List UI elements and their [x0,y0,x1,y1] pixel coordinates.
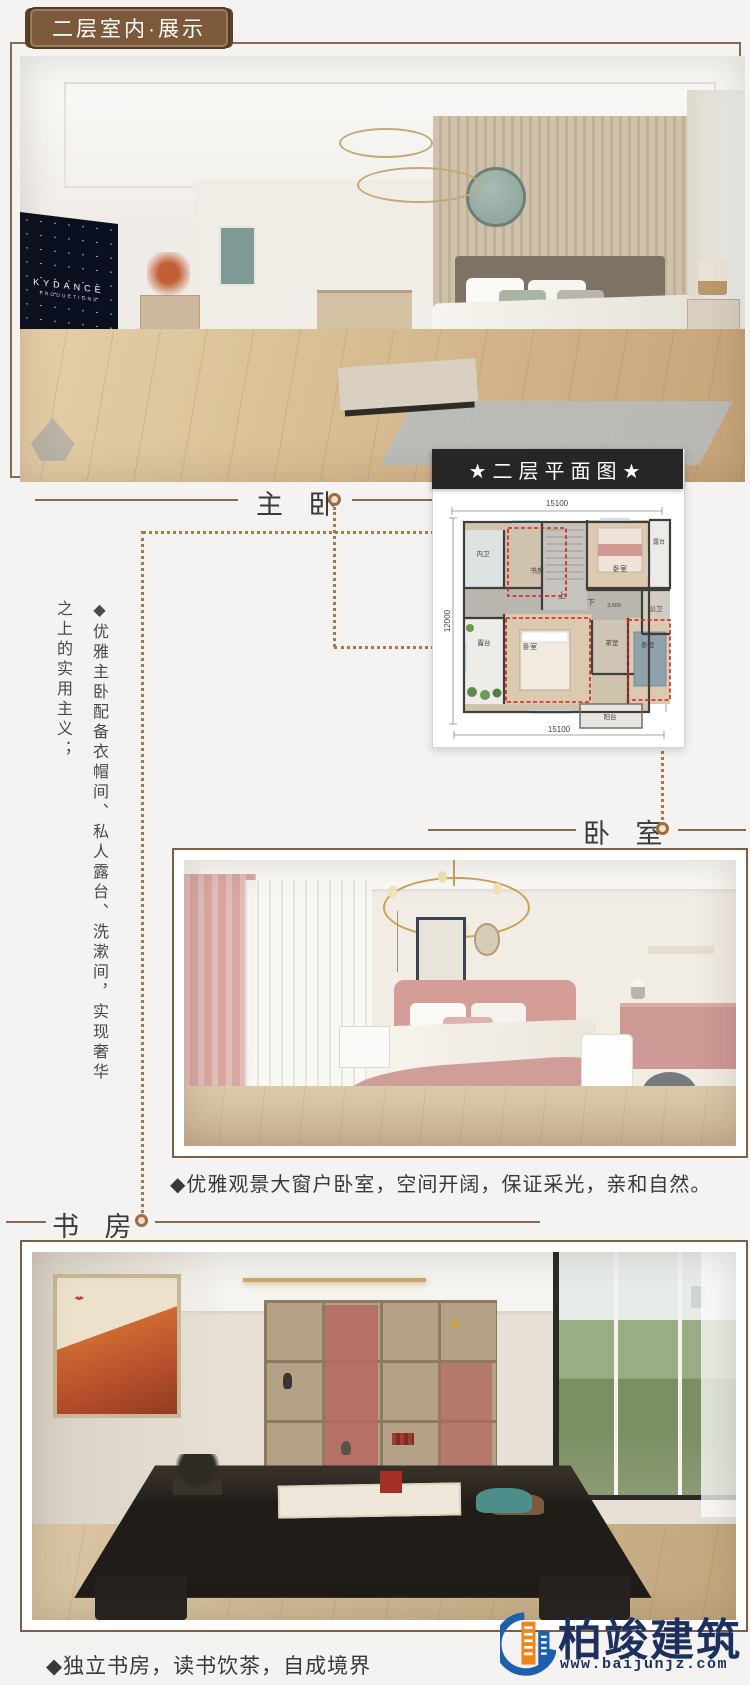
floorplan-drawing: 15100 15100 12000 12000 [442,492,672,742]
room-bath-master: 内卫 [477,549,491,558]
photo-vignette [20,56,745,482]
study-caption: ◆独立书房，读书饮茶，自成境界 [46,1650,371,1680]
room-bedroom-tr: 卧室 [613,564,627,573]
vertical-note: ◆优雅主卧配备衣帽间、私人露台、洗漱间，实现奢华 之上的实用主义； [40,600,116,1105]
section-badge-label: 二层室内·展示 [52,13,206,43]
page: 二层室内·展示 KYDANCE PRODUCTIONS [0,0,750,1685]
stair-down: 下 [587,598,595,607]
room-terrace-left: 露台 [478,638,491,647]
study-rule-left [6,1221,46,1223]
bedroom-rule-left [428,829,576,831]
elevation-mark: 3,600 [607,603,621,609]
floorplan-banner-label: ★二层平面图★ [469,455,647,484]
bedroom-connector-node [656,822,669,835]
dim-left: 12000 [443,609,452,632]
master-rule-left [35,499,238,501]
study-rule-right [155,1221,540,1223]
study-label: 书 房 [52,1205,141,1244]
room-bath-public: 公卫 [650,605,664,613]
brand-website: www.baijunjz.com [560,1656,728,1673]
study-photo [32,1252,736,1620]
brand-logo-icon [500,1610,556,1680]
photo-vignette [184,860,736,1146]
bedroom-caption: ◆优雅观景大窗户卧室，空间开阔，保证采光，亲和自然。 [170,1168,711,1197]
stair-up: 上 [558,591,566,600]
brand-logo: 柏竣建筑 www.baijunjz.com [500,1608,748,1682]
master-connector-node [328,493,341,506]
room-tea: 茶室 [606,638,620,647]
bedroom-photo [184,860,736,1146]
floorplan-banner: ★二层平面图★ [432,449,683,489]
vertical-note-line1: ◆优雅主卧配备衣帽间、私人露台、洗漱间，实现奢华 [80,600,116,1105]
bedroom-rule-right [678,829,746,831]
study-connector-node [135,1214,148,1227]
section-badge: 二层室内·展示 [28,7,230,49]
study-connector-vline [141,531,144,1213]
dim-bottom: 15100 [548,725,571,734]
photo-vignette [32,1252,736,1620]
room-bedroom-br: 卧室 [642,640,656,649]
room-balcony: 阳台 [604,712,617,721]
dim-top: 15100 [546,499,569,508]
room-terrace-tr: 露台 [653,538,665,546]
master-bedroom-photo: KYDANCE PRODUCTIONS [20,56,745,482]
master-connector-vline [333,507,336,647]
room-bedroom-bl: 卧室 [523,642,537,651]
vertical-note-line2: 之上的实用主义； [44,600,80,1105]
room-study: 书房 [530,566,544,575]
